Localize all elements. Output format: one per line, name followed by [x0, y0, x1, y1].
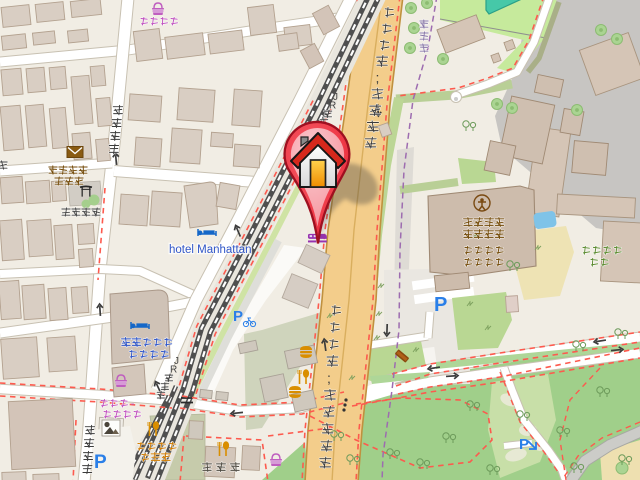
svg-text:P: P: [233, 308, 243, 325]
svg-text:;: ;: [376, 69, 380, 85]
svg-text:R: R: [329, 101, 336, 112]
svg-text:hotel Manhattan: hotel Manhattan: [169, 244, 251, 256]
svg-text:;: ;: [327, 370, 331, 386]
svg-text:P: P: [519, 436, 529, 453]
svg-text:-: -: [131, 398, 135, 410]
svg-text:P: P: [94, 452, 107, 473]
svg-text:R: R: [170, 365, 177, 376]
svg-text:P: P: [434, 294, 447, 316]
